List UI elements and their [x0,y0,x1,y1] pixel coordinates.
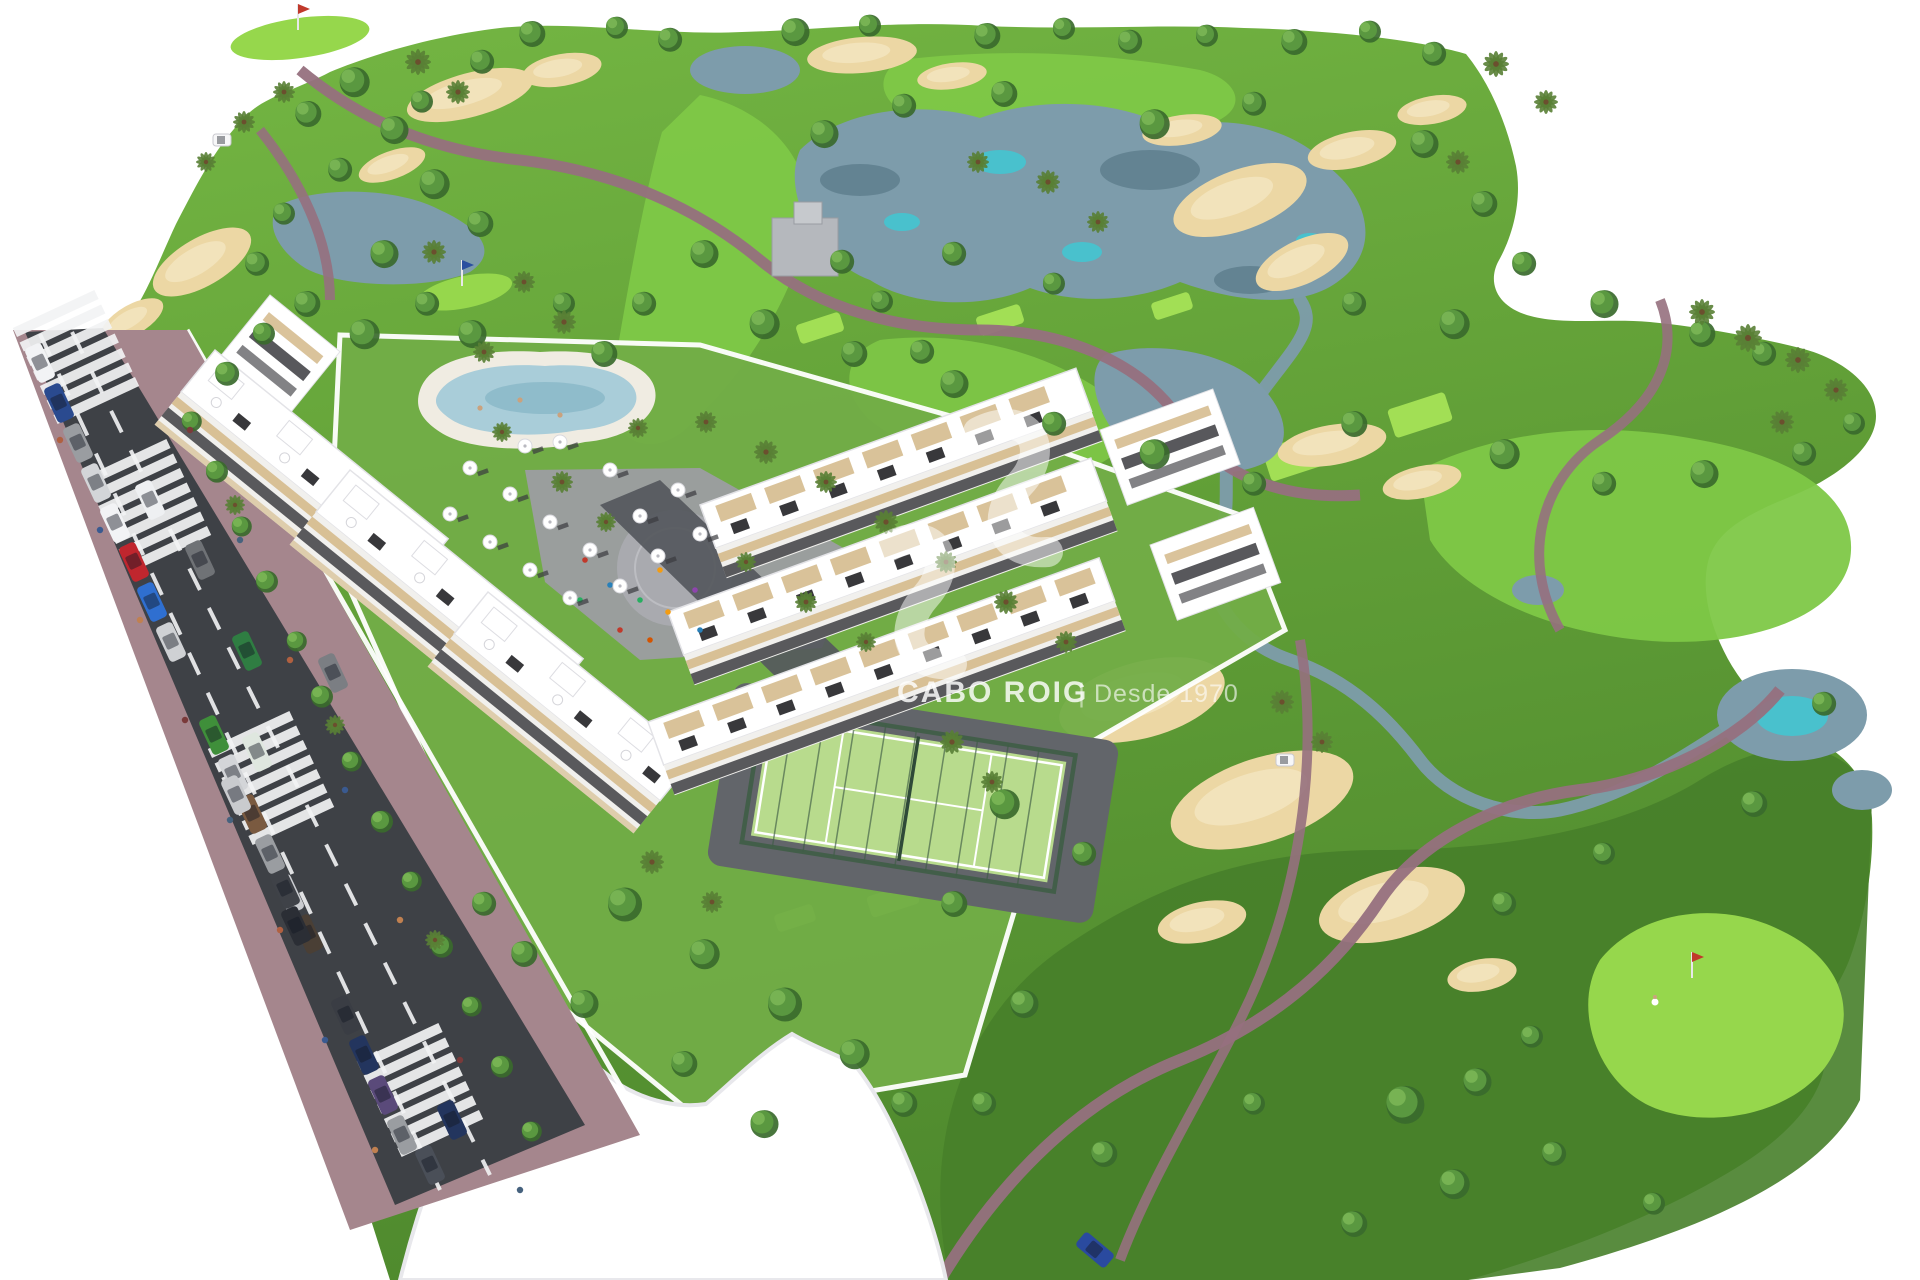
parasol-pole [656,554,659,557]
tree-foliage-highlight [1544,1144,1555,1155]
tree-foliage-highlight [842,1042,856,1056]
parasol-pole [676,488,679,491]
palm-trunk [500,430,504,434]
tree-foliage-highlight [572,992,585,1005]
tree-foliage-highlight [463,998,472,1007]
tree-foliage-highlight [1844,414,1854,424]
palm-trunk [990,780,995,785]
playground-person [607,582,613,588]
parasol-pole [523,444,526,447]
tree-foliage-highlight [343,753,352,762]
parasol-pole [568,596,571,599]
tree-foliage-highlight [257,572,267,582]
palm-trunk [561,319,566,324]
tree-foliage-highlight [460,322,473,335]
tree-icon [1512,252,1536,276]
tree-foliage-highlight [943,893,955,905]
pond [690,46,800,94]
tree-foliage-highlight [1283,31,1295,43]
tree-icon [1091,1141,1117,1167]
palm-trunk [333,723,337,727]
tree-icon [1542,1142,1566,1166]
tree-icon [381,116,409,144]
tree-foliage-highlight [297,103,309,115]
tree-foliage-highlight [1492,442,1506,456]
tree-foliage-highlight [342,70,356,84]
tree-icon [287,632,307,652]
palm-trunk [522,280,527,285]
tree-icon [1072,842,1096,866]
tree-foliage-highlight [492,1057,502,1067]
pedestrian [237,537,243,543]
tree-foliage-highlight [1360,22,1370,32]
tree-foliage-highlight [610,890,625,905]
tree-foliage-highlight [372,242,385,255]
palm-trunk [1833,387,1838,392]
tree-foliage-highlight [752,1112,765,1125]
tree-icon [1492,892,1516,916]
tree-icon [371,811,393,833]
tree-icon [420,169,450,199]
palm-trunk [744,560,748,564]
water-highlight [1062,242,1102,262]
tree-icon [990,789,1020,819]
tree-icon [1752,342,1776,366]
golf-cart-icon [213,134,231,146]
tree-foliage-highlight [1442,312,1456,326]
tree-icon [1242,472,1266,496]
tree-icon [328,158,352,182]
tree-icon [1342,292,1366,316]
tree-icon [522,1122,542,1142]
palm-trunk [636,426,640,430]
parasol-pole [558,440,561,443]
tree-foliage-highlight [312,687,322,697]
palm-trunk [604,520,608,524]
tree-foliage-highlight [1594,474,1605,485]
palm-trunk [1745,335,1751,341]
tree-icon [256,571,278,593]
tree-icon [467,211,493,237]
tree-icon [840,1039,870,1069]
tree-icon [1691,460,1719,488]
tree-icon [841,341,867,367]
palm-trunk [804,600,809,605]
tree-foliage-highlight [472,52,483,63]
golfer-head [1653,995,1657,999]
palm-trunk [242,120,247,125]
tree-icon [1196,25,1218,47]
tree-foliage-highlight [1592,292,1605,305]
tree-icon [830,250,854,274]
tree-icon [941,370,969,398]
palm-trunk [455,89,460,94]
tree-foliage-highlight [1814,694,1825,705]
tree-foliage-highlight [1644,1194,1654,1204]
tree-foliage-highlight [1343,1213,1355,1225]
tree-icon [1490,439,1520,469]
tree-foliage-highlight [692,242,705,255]
aerial-render-canvas: CABO ROIG | Desde 1970 [0,0,1920,1280]
palm-trunk [1003,599,1008,604]
tree-foliage-highlight [912,342,923,353]
tree-icon [1281,29,1307,55]
pedestrian [57,437,63,443]
watermark-tagline-text: Desde 1970 [1094,680,1239,708]
tree-icon [1792,442,1816,466]
pedestrian [397,917,403,923]
tree-foliage-highlight [352,322,366,336]
tree-foliage-highlight [296,293,308,305]
tree-foliage-highlight [1074,844,1085,855]
parasol-pole [548,520,551,523]
cart-canopy [217,136,225,144]
golfer-body [1652,999,1659,1006]
palm-trunk [949,739,954,744]
palm-trunk [431,249,436,254]
watermark-divider: | [1078,678,1085,708]
tree-foliage-highlight [1522,1027,1532,1037]
palm-trunk [415,59,421,65]
playground-person [637,597,643,603]
tree-icon [658,28,682,52]
water-highlight [884,213,920,231]
palm-trunk [1064,640,1069,645]
tree-icon [1243,1093,1265,1115]
tree-icon [1440,309,1470,339]
tree-icon [1440,1169,1470,1199]
tree-foliage-highlight [1044,274,1054,284]
tree-icon [606,17,628,39]
tree-icon [910,340,934,364]
cart-canopy [1280,756,1288,764]
palm-trunk [1455,159,1460,164]
tree-icon [294,291,320,317]
tree-foliage-highlight [1389,1089,1406,1106]
tree-icon [974,23,1000,49]
swimmer [557,412,562,417]
tree-foliage-highlight [288,633,297,642]
parasol-pole [528,568,531,571]
tree-icon [571,990,599,1018]
tree-foliage-highlight [993,83,1005,95]
tree-foliage-highlight [872,292,882,302]
tree-icon [491,1056,513,1078]
playground-person [582,557,588,563]
tree-icon [942,242,966,266]
palm-trunk [433,938,437,942]
tree-foliage-highlight [207,462,217,472]
tree-icon [472,892,496,916]
tree-icon [311,686,333,708]
tree-icon [411,91,433,113]
tree-foliage-highlight [1743,793,1755,805]
tree-foliage-highlight [523,1123,532,1132]
tree-foliage-highlight [1344,294,1355,305]
tree-foliage-highlight [974,1094,985,1105]
tree-icon [690,939,720,969]
tree-foliage-highlight [382,118,395,131]
tree-foliage-highlight [1465,1070,1478,1083]
tree-foliage-highlight [1794,444,1805,455]
tree-foliage-highlight [217,364,228,375]
tree-foliage-highlight [944,244,955,255]
palm-trunk [864,640,868,644]
tree-foliage-highlight [673,1053,685,1065]
tree-foliage-highlight [183,413,192,422]
playground-person [692,587,698,593]
tree-foliage-highlight [634,294,645,305]
tree-icon [1843,413,1865,435]
palm-trunk [1779,419,1784,424]
palm-trunk [704,420,709,425]
palm-trunk [763,449,768,454]
tree-icon [1741,791,1767,817]
tree-foliage-highlight [403,873,412,882]
tree-icon [206,461,228,483]
tree-icon [1043,273,1065,295]
tree-icon [350,319,380,349]
parasol-pole [488,540,491,543]
pedestrian [277,927,283,933]
tree-icon [415,292,439,316]
tree-icon [608,888,642,922]
palm-trunk [649,859,654,864]
pedestrian [97,527,103,533]
palm-trunk [282,90,287,95]
tree-foliage-highlight [607,18,617,28]
tree-foliage-highlight [233,518,242,527]
parasol-pole [588,548,591,551]
tree-foliage-highlight [893,1093,905,1105]
tree-icon [1592,472,1616,496]
tree-foliage-highlight [593,343,605,355]
tree-foliage-highlight [1142,112,1156,126]
tree-foliage-highlight [692,942,706,956]
tree-icon [782,18,810,46]
tree-icon [462,997,482,1017]
tree-icon [511,941,537,967]
tree-foliage-highlight [752,312,766,326]
parasol-pole [638,514,641,517]
tree-foliage-highlight [1142,442,1156,456]
pool-deep-end [485,382,605,414]
tree-foliage-highlight [254,324,264,334]
tree-foliage-highlight [770,990,785,1005]
tree-icon [1341,1211,1367,1237]
tree-icon [1591,290,1619,318]
tree-foliage-highlight [330,160,341,171]
palm-trunk [1795,357,1801,363]
tree-icon [215,362,239,386]
tree-foliage-highlight [1244,474,1255,485]
palm-trunk [482,350,487,355]
tree-foliage-highlight [521,23,533,35]
tree-foliage-highlight [422,172,436,186]
tree-foliage-highlight [469,213,481,225]
playground-person [617,627,623,633]
tree-icon [519,21,545,47]
tree-icon [1422,42,1446,66]
tree-icon [340,67,370,97]
tree-icon [1643,1193,1665,1215]
tree-icon [245,252,269,276]
tree-icon [891,1091,917,1117]
tree-icon [871,291,893,313]
tree-foliage-highlight [992,792,1006,806]
palm-trunk [560,480,565,485]
tree-foliage-highlight [1691,323,1703,335]
palm-trunk [1543,99,1548,104]
palm-trunk [710,900,715,905]
parasol-pole [698,532,701,535]
tree-icon [991,81,1017,107]
palm-trunk [1045,179,1050,184]
tree-icon [1359,21,1381,43]
pedestrian [227,817,233,823]
parasol-pole [448,512,451,515]
tree-foliage-highlight [660,30,671,41]
palm-trunk [1096,220,1101,225]
tree-foliage-highlight [1244,94,1255,105]
palm-trunk [1699,309,1705,315]
tree-icon [232,517,252,537]
tree-icon [1386,1086,1424,1124]
pedestrian [182,717,188,723]
pedestrian [372,1147,378,1153]
pedestrian [457,1057,463,1063]
tree-icon [1140,439,1170,469]
parasol-pole [468,466,471,469]
tree-foliage-highlight [1012,992,1025,1005]
pedestrian [287,657,293,663]
tree-foliage-highlight [417,294,428,305]
tree-foliage-highlight [1594,844,1604,854]
tree-foliage-highlight [1692,462,1705,475]
tree-icon [1011,990,1039,1018]
tree-icon [371,240,399,268]
tree-icon [859,15,881,37]
tree-icon [1140,109,1170,139]
tree-foliage-highlight [474,894,485,905]
golf-resort-render: CABO ROIG | Desde 1970 [0,0,1920,1280]
tree-icon [1053,18,1075,40]
tree-foliage-highlight [1044,414,1055,425]
tree-icon [402,872,422,892]
tree-icon [253,323,275,345]
tree-icon [1471,191,1497,217]
tree-foliage-highlight [1494,894,1505,905]
tree-foliage-highlight [1514,254,1525,265]
palm-trunk [1320,740,1325,745]
tree-foliage-highlight [1197,26,1207,36]
golf-cart-icon [1276,754,1294,766]
water-shadow [820,164,900,196]
playground-person [657,567,663,573]
tree-icon [1593,843,1615,865]
tree-foliage-highlight [513,943,525,955]
parasol-pole [608,468,611,471]
tree-foliage-highlight [1244,1094,1254,1104]
tree-icon [342,752,362,772]
tree-foliage-highlight [554,294,564,304]
pedestrian [342,787,348,793]
tree-foliage-highlight [1424,44,1435,55]
playground-person [697,627,703,633]
tree-icon [691,240,719,268]
pedestrian [322,1037,328,1043]
pedestrian [517,1187,523,1193]
tree-icon [1411,130,1439,158]
parasol-pole [508,492,511,495]
tree-icon [632,292,656,316]
parasol-pole [618,584,621,587]
tree-icon [1812,692,1836,716]
tree-foliage-highlight [832,252,843,263]
palm-trunk [1279,699,1284,704]
tree-icon [1521,1026,1543,1048]
tree-foliage-highlight [412,92,422,102]
tree-foliage-highlight [860,16,870,26]
palm-trunk [976,160,981,165]
tree-icon [768,988,802,1022]
palm-trunk [204,160,208,164]
pond [1832,770,1892,810]
tree-icon [295,101,321,127]
tree-foliage-highlight [894,96,905,107]
tree-icon [750,309,780,339]
tree-foliage-highlight [1442,1172,1456,1186]
tree-foliage-highlight [843,343,855,355]
tree-icon [273,203,295,225]
tree-foliage-highlight [976,25,988,37]
tree-icon [470,50,494,74]
tree-foliage-highlight [1412,132,1425,145]
palm-trunk [824,480,829,485]
tree-icon [941,891,967,917]
tree-icon [671,1051,697,1077]
tree-foliage-highlight [1120,32,1131,43]
tree-foliage-highlight [783,20,796,33]
tree-foliage-highlight [274,204,284,214]
tree-icon [751,1110,779,1138]
tree-icon [591,341,617,367]
tree-icon [1341,411,1367,437]
tree-icon [1242,92,1266,116]
watermark-brand-text: CABO ROIG [897,676,1088,709]
pedestrian [187,427,193,433]
pedestrian [137,617,143,623]
tree-icon [892,94,916,118]
playground-person [647,637,653,643]
swimmer [477,405,482,410]
tree-icon [811,120,839,148]
tree-foliage-highlight [372,812,382,822]
tree-foliage-highlight [1343,413,1355,425]
water-shadow [1100,150,1200,190]
tree-foliage-highlight [812,122,825,135]
swimmer [517,397,522,402]
playground-person [665,609,671,615]
tree-foliage-highlight [1093,1143,1105,1155]
tree-foliage-highlight [247,254,258,265]
palm-trunk [883,519,888,524]
palm-trunk [1493,61,1499,67]
tree-icon [1464,1068,1492,1096]
tree-foliage-highlight [1054,19,1064,29]
tree-icon [1118,30,1142,54]
palm-trunk [233,503,237,507]
